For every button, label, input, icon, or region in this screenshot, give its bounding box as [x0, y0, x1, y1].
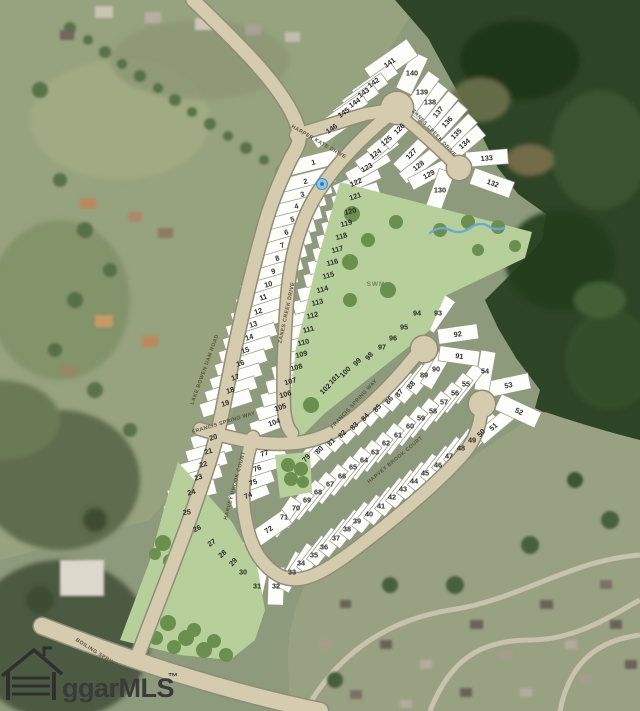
- lot-number-55: 55: [462, 380, 470, 389]
- lot-number-39: 39: [353, 517, 361, 526]
- lot-number-63: 63: [371, 448, 379, 457]
- culdesac-zanes: [448, 157, 471, 180]
- lot-number-95: 95: [400, 323, 408, 332]
- lot-number-58: 58: [429, 407, 437, 416]
- lot-number-47: 47: [445, 452, 453, 461]
- lot-number-54: 54: [481, 367, 490, 376]
- lot-number-94: 94: [413, 309, 422, 318]
- lot-number-91: 91: [455, 351, 464, 361]
- lot-number-60: 60: [406, 422, 414, 431]
- lot-number-93: 93: [434, 309, 442, 318]
- lot-number-66: 66: [338, 472, 346, 481]
- lot-number-65: 65: [349, 463, 357, 472]
- lot-number-90: 90: [432, 365, 440, 374]
- satellite-house-white: [60, 560, 104, 596]
- lot-number-62: 62: [382, 439, 390, 448]
- lot-number-70: 70: [292, 504, 300, 513]
- lot-number-38: 38: [343, 525, 351, 534]
- lot-number-43: 43: [399, 485, 407, 494]
- lot-number-71: 71: [280, 513, 288, 522]
- lot-number-92: 92: [453, 329, 462, 339]
- watermark-text: ggarMLS: [62, 673, 174, 703]
- lot-number-69: 69: [303, 496, 311, 505]
- lot-number-61: 61: [394, 431, 402, 440]
- lot-number-46: 46: [434, 461, 442, 470]
- map-canvas: HARPER KATE DRIVEZANES CREEK DRIVEZANES …: [0, 0, 640, 711]
- lot-number-30: 30: [239, 568, 247, 577]
- plat-map-screenshot: HARPER KATE DRIVEZANES CREEK DRIVEZANES …: [0, 0, 640, 711]
- culdesac-harvey: [470, 392, 495, 417]
- lot-number-40: 40: [365, 510, 373, 519]
- lot-number-49: 49: [468, 436, 476, 445]
- lot-number-31: 31: [253, 582, 261, 591]
- lot-number-89: 89: [420, 371, 428, 380]
- lot-number-32: 32: [272, 582, 280, 591]
- lot-number-37: 37: [332, 534, 340, 543]
- lot-number-35: 35: [310, 551, 318, 560]
- culdesac-francis: [412, 337, 437, 362]
- lot-number-42: 42: [388, 493, 396, 502]
- lot-number-59: 59: [417, 414, 425, 423]
- lot-number-67: 67: [326, 480, 334, 489]
- lot-number-130: 130: [434, 186, 446, 195]
- lot-number-140: 140: [406, 69, 418, 78]
- lot-number-138: 138: [424, 98, 436, 107]
- lot-number-57: 57: [440, 398, 448, 407]
- lot-number-33: 33: [288, 568, 296, 577]
- watermark-tm: ™: [168, 672, 178, 683]
- lot-number-41: 41: [377, 502, 385, 511]
- culdesac-north: [382, 93, 413, 124]
- lot-number-97: 97: [378, 343, 386, 352]
- lot-number-25: 25: [182, 507, 191, 517]
- lot-number-96: 96: [389, 334, 397, 343]
- lot-number-44: 44: [410, 477, 419, 486]
- water-point-icon: [317, 179, 328, 190]
- lot-number-133: 133: [480, 153, 493, 163]
- lot-number-45: 45: [421, 469, 429, 478]
- swm-label: SWM: [367, 281, 386, 288]
- lot-number-48: 48: [457, 444, 465, 453]
- lot-number-36: 36: [320, 543, 328, 552]
- lot-number-56: 56: [451, 389, 459, 398]
- lot-number-139: 139: [416, 88, 428, 97]
- lot-number-64: 64: [360, 456, 369, 465]
- lot-number-34: 34: [297, 559, 306, 568]
- lot-number-68: 68: [314, 488, 322, 497]
